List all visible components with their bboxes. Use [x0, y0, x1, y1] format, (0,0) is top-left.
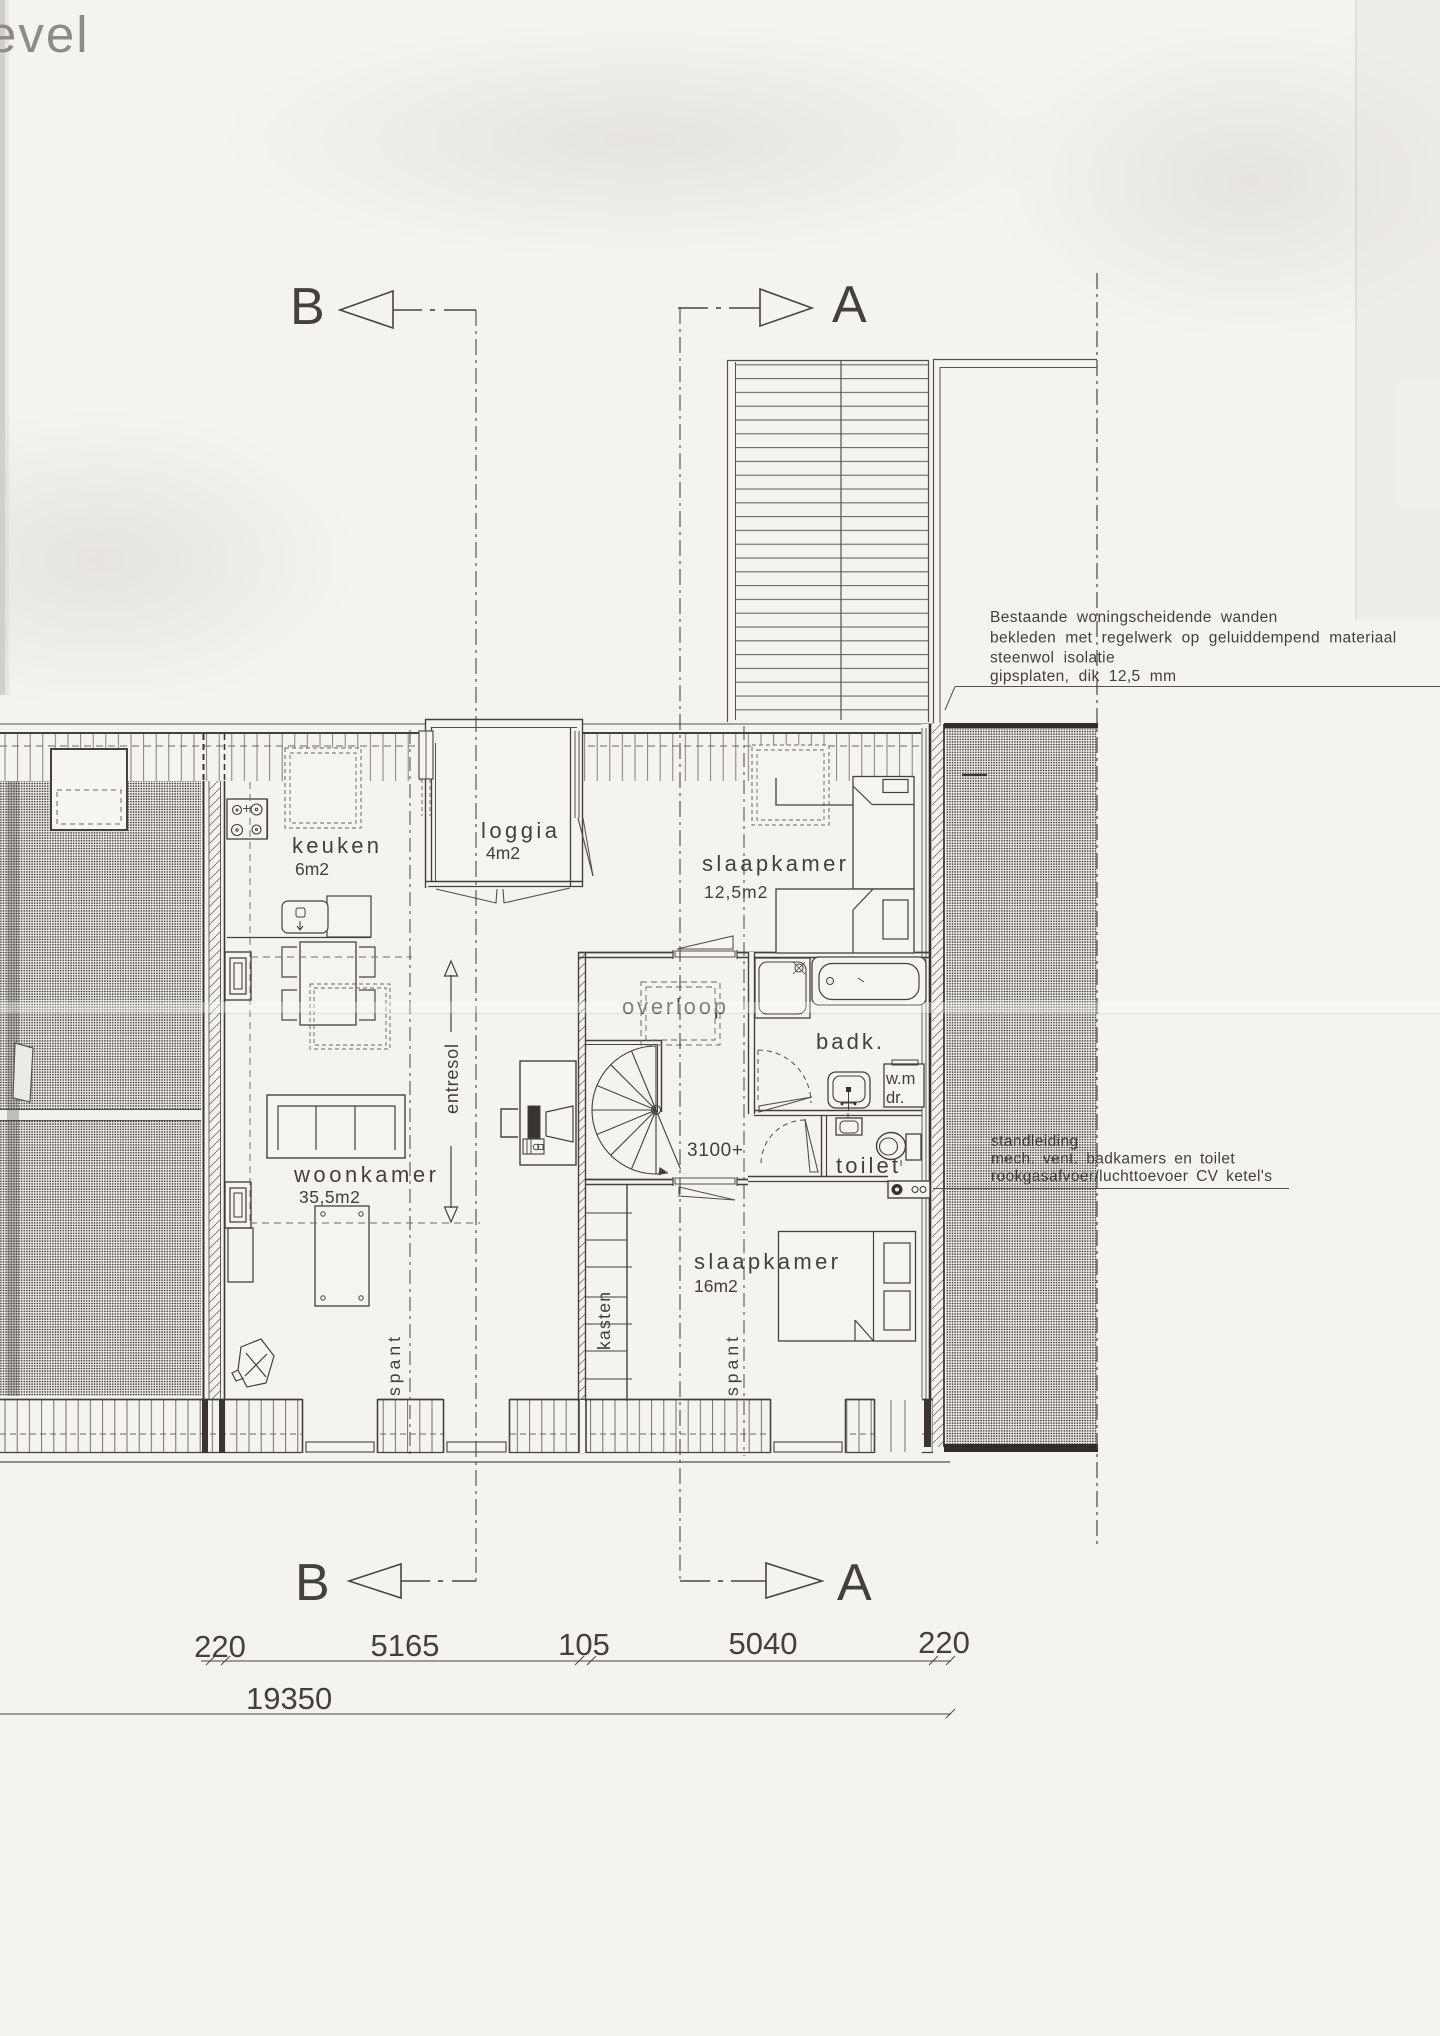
svg-text:evel: evel — [0, 6, 90, 63]
svg-text:badk.: badk. — [816, 1029, 882, 1054]
svg-text:B: B — [290, 278, 326, 336]
svg-text:woonkamer: woonkamer — [293, 1162, 436, 1187]
svg-text:steenwol isolatie: steenwol isolatie — [990, 650, 1115, 667]
svg-text:19350: 19350 — [246, 1681, 332, 1716]
svg-text:Bestaande woningscheidende wan: Bestaande woningscheidende wanden — [990, 609, 1278, 626]
svg-text:220: 220 — [194, 1629, 246, 1664]
svg-text:16m2: 16m2 — [694, 1276, 738, 1296]
svg-text:standleiding: standleiding — [991, 1133, 1079, 1150]
svg-text:5040: 5040 — [729, 1626, 798, 1661]
svg-text:entresol: entresol — [442, 1044, 462, 1114]
svg-text:A: A — [837, 1554, 873, 1612]
svg-text:dr.: dr. — [886, 1089, 904, 1107]
svg-text:rookgasafvoer/luchttoevoer CV: rookgasafvoer/luchttoevoer CV ketel's — [991, 1168, 1272, 1185]
svg-text:kasten: kasten — [594, 1292, 614, 1350]
svg-text:35,5m2: 35,5m2 — [299, 1187, 360, 1207]
svg-text:6m2: 6m2 — [295, 859, 329, 879]
svg-text:A: A — [832, 276, 868, 334]
svg-text:220: 220 — [918, 1625, 970, 1660]
svg-text:3100+: 3100+ — [687, 1140, 743, 1161]
svg-text:4m2: 4m2 — [486, 843, 520, 863]
svg-text:gipsplaten, dik 12,5 mm: gipsplaten, dik 12,5 mm — [990, 668, 1176, 685]
svg-text:w.m: w.m — [885, 1070, 915, 1088]
svg-text:5165: 5165 — [371, 1628, 440, 1663]
svg-text:bekleden met regelwerk op gelu: bekleden met regelwerk op geluiddempend … — [990, 630, 1397, 647]
svg-text:105: 105 — [558, 1627, 610, 1662]
svg-text:B: B — [295, 1554, 331, 1612]
svg-text:mech. vent. badkamers en toile: mech. vent. badkamers en toilet — [991, 1151, 1235, 1168]
svg-text:12,5m2: 12,5m2 — [704, 882, 768, 902]
